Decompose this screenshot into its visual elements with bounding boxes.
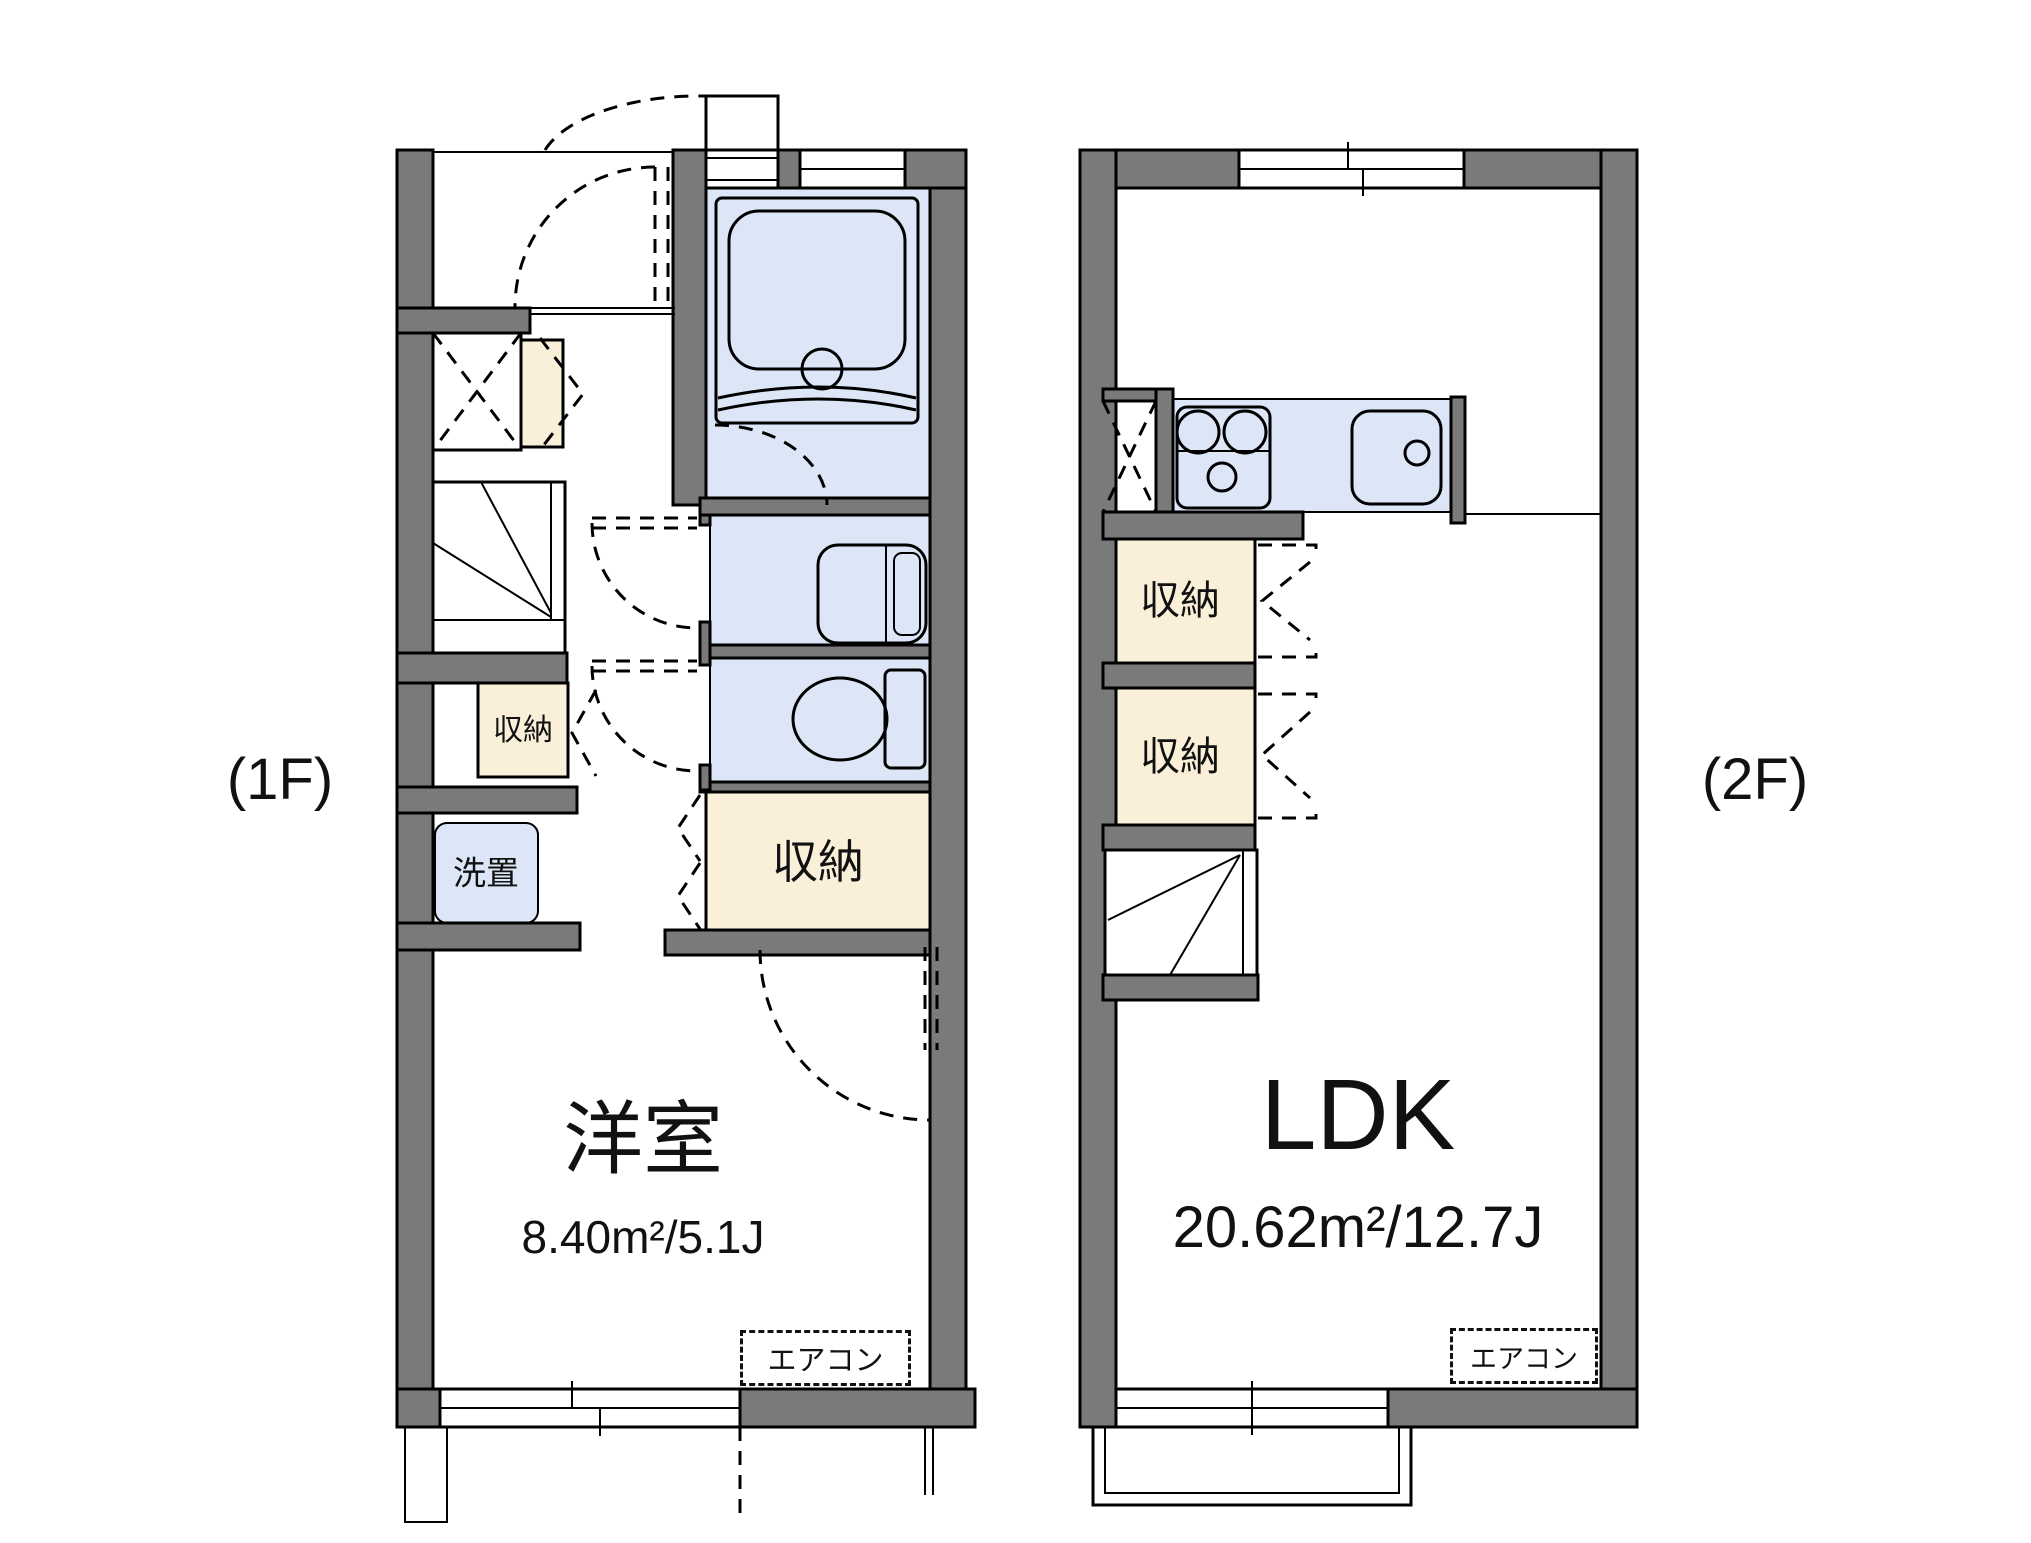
balcony	[1093, 1427, 1411, 1505]
aircon-label-1f: エアコン	[767, 1337, 883, 1379]
bedroom-window	[440, 1381, 740, 1436]
storage-small-label-1f: 収納	[493, 716, 553, 746]
floor1-label: (1F)	[227, 751, 333, 809]
storage1-label-2f: 収納	[1140, 581, 1220, 621]
washroom-floor	[710, 515, 930, 645]
storage-label-1f: 収納	[772, 839, 864, 885]
entrance-door	[545, 96, 778, 188]
floor2-plan	[1080, 142, 1637, 1505]
bath-window	[800, 150, 905, 188]
genkan-step-line	[530, 308, 675, 314]
floor1-plan	[397, 96, 975, 1522]
aircon-label-2f: エアコン	[1470, 1337, 1578, 1376]
laundry-label: 洗置	[453, 857, 519, 890]
kitchen-counter	[1173, 399, 1451, 512]
toilet-room-floor	[710, 658, 930, 782]
room1-name: 洋室	[563, 1100, 723, 1180]
stairs-1f	[433, 482, 565, 653]
aircon-box-1f: エアコン	[740, 1330, 911, 1386]
floor2-label: (2F)	[1702, 751, 1808, 809]
ldk-bottom-window	[1116, 1381, 1388, 1435]
entry-shelf	[521, 340, 563, 447]
stairs-2f	[1105, 850, 1257, 975]
ldk-top-window	[1239, 142, 1464, 196]
aircon-box-2f: エアコン	[1450, 1328, 1598, 1384]
room2-name: LDK	[1261, 1065, 1456, 1165]
floorplan-canvas: (1F) (2F) 洋室 8.40m²/5.1J LDK 20.62m²/12.…	[0, 0, 2031, 1543]
bathroom-floor	[706, 188, 930, 498]
room2-area: 20.62m²/12.7J	[1173, 1199, 1544, 1257]
storage2-label-2f: 収納	[1140, 737, 1220, 777]
room1-area: 8.40m²/5.1J	[522, 1214, 765, 1260]
site-lines-1f	[405, 1427, 933, 1522]
